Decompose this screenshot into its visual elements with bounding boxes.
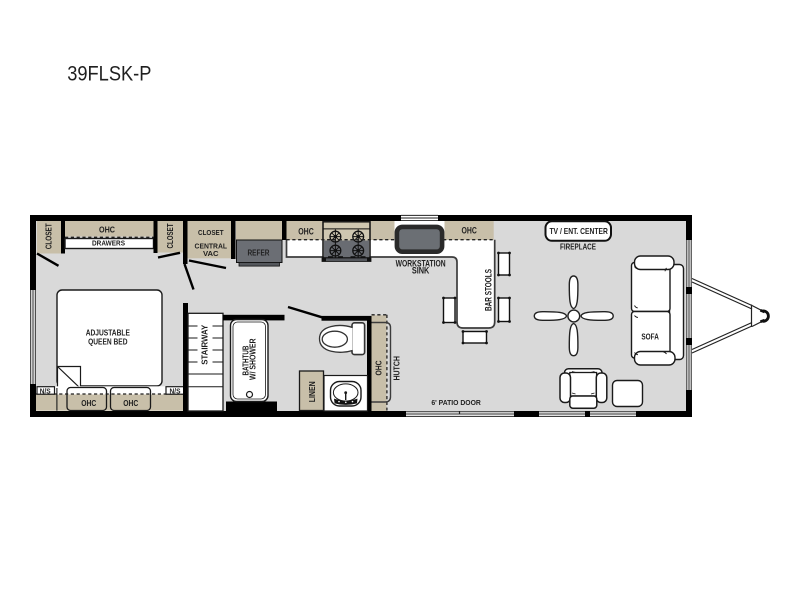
svg-text:CLOSET: CLOSET	[43, 223, 53, 250]
svg-text:OHC: OHC	[298, 227, 314, 237]
svg-text:VAC: VAC	[203, 249, 219, 258]
svg-text:QUEEN BED: QUEEN BED	[88, 337, 128, 346]
svg-text:6' PATIO DOOR: 6' PATIO DOOR	[431, 398, 481, 407]
svg-text:REFER: REFER	[248, 248, 270, 257]
svg-text:DRAWERS: DRAWERS	[92, 238, 125, 247]
svg-text:OHC: OHC	[99, 224, 116, 234]
svg-text:N/S: N/S	[40, 386, 51, 395]
svg-text:CLOSET: CLOSET	[198, 228, 224, 237]
svg-text:SINK: SINK	[412, 266, 430, 276]
svg-text:CLOSET: CLOSET	[165, 223, 175, 249]
svg-text:OHC: OHC	[123, 398, 139, 408]
svg-text:FIREPLACE: FIREPLACE	[560, 242, 596, 252]
svg-text:ADJUSTABLE: ADJUSTABLE	[86, 328, 130, 337]
svg-text:OHC: OHC	[81, 398, 97, 408]
svg-text:W/ SHOWER: W/ SHOWER	[249, 338, 258, 380]
svg-text:OHC: OHC	[375, 360, 384, 375]
svg-text:TV / ENT. CENTER: TV / ENT. CENTER	[549, 226, 608, 236]
svg-text:OHC: OHC	[462, 226, 478, 236]
svg-text:STAIRWAY: STAIRWAY	[199, 325, 209, 365]
svg-text:BAR STOOLS: BAR STOOLS	[483, 269, 493, 311]
svg-text:39FLSK-P: 39FLSK-P	[67, 62, 151, 86]
svg-text:LINEN: LINEN	[308, 381, 317, 402]
svg-text:HUTCH: HUTCH	[392, 356, 401, 381]
svg-text:N/S: N/S	[170, 386, 181, 395]
svg-text:SOFA: SOFA	[641, 332, 659, 342]
